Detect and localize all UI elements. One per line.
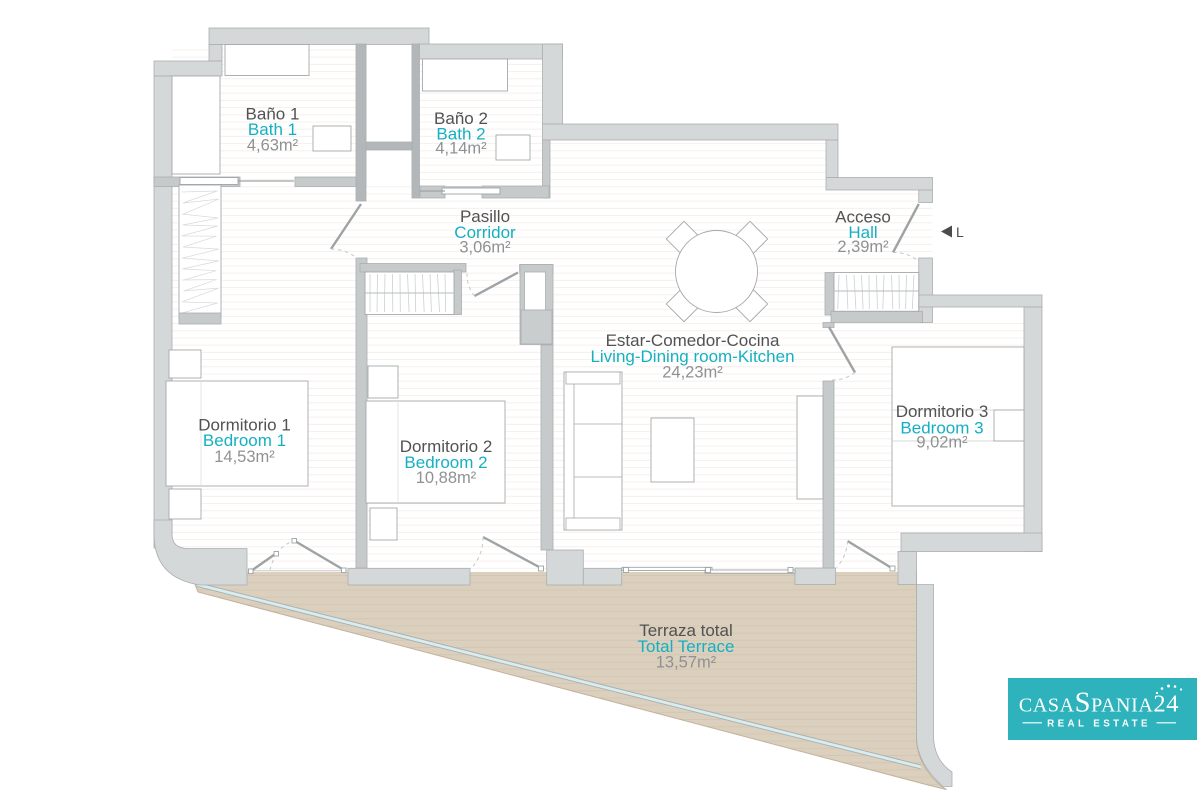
svg-text:2,39m²: 2,39m² bbox=[837, 238, 889, 256]
svg-text:10,88m²: 10,88m² bbox=[416, 469, 477, 487]
svg-text:13,57m²: 13,57m² bbox=[656, 654, 717, 672]
svg-text:REAL ESTATE: REAL ESTATE bbox=[1047, 719, 1151, 730]
svg-text:L: L bbox=[956, 224, 964, 240]
svg-text:14,53m²: 14,53m² bbox=[214, 448, 275, 466]
svg-text:4,14m²: 4,14m² bbox=[435, 140, 487, 158]
svg-text:3,06m²: 3,06m² bbox=[459, 239, 511, 257]
svg-text:9,02m²: 9,02m² bbox=[916, 434, 968, 452]
svg-text:24,23m²: 24,23m² bbox=[662, 364, 723, 382]
svg-text:4,63m²: 4,63m² bbox=[247, 137, 299, 155]
